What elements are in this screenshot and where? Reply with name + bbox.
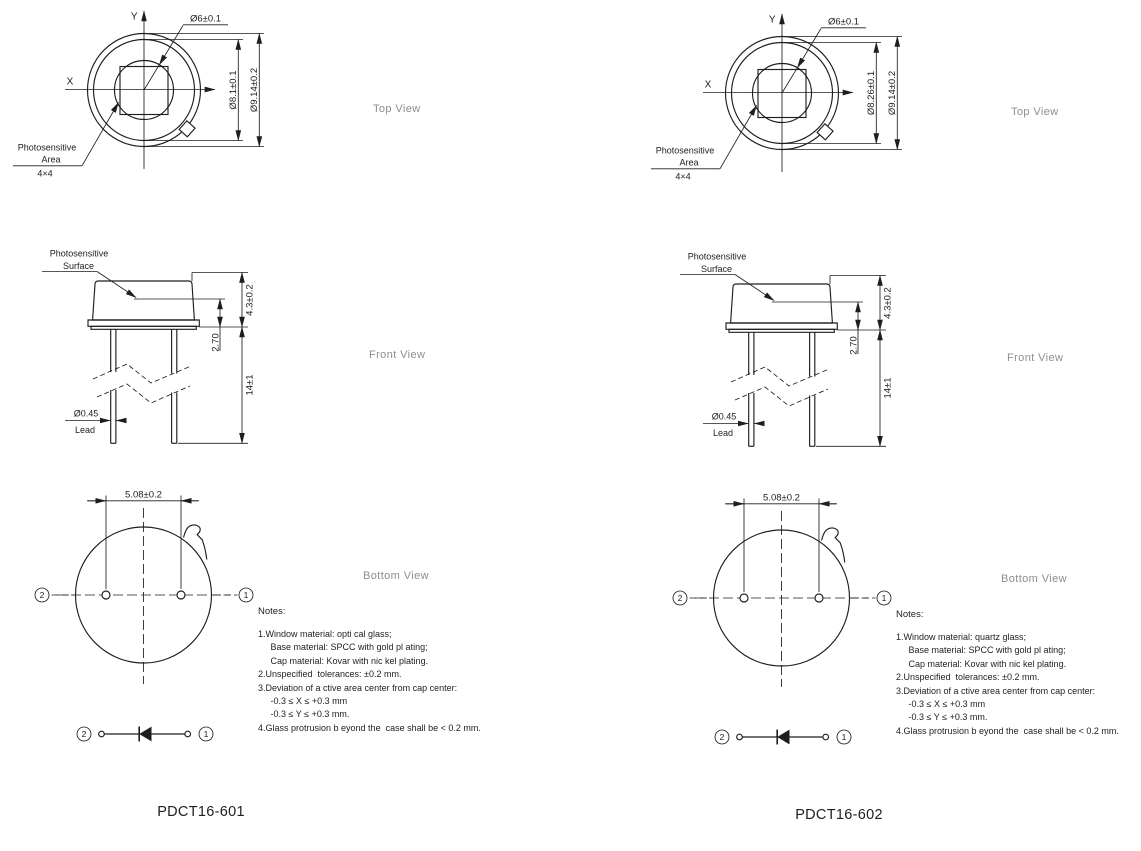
dim-outer-diameter: Ø9.14±0.2 (783, 37, 902, 150)
terminal-2 (99, 731, 105, 737)
part-number: PDCT16-601 (128, 804, 274, 820)
area-label-line2: Area (41, 155, 60, 165)
axis-y-label: Y (131, 12, 138, 23)
dim-outer-diameter: Ø9.14±0.2 (145, 34, 264, 147)
photosensitive-surface-callout: Photosensitive Surface (680, 252, 774, 301)
surface-height-value: 2.70 (211, 333, 222, 352)
note-line: 4.Glass protrusion b eyond the case shal… (896, 725, 1119, 738)
lead-label: Lead (75, 425, 95, 435)
area-label-line2: Area (679, 158, 698, 168)
cap-height-value: 4.3±0.2 (245, 284, 256, 316)
flange-step (729, 329, 834, 332)
cap-body-outline (93, 281, 195, 320)
note-line: -0.3 ≤ Y ≤ +0.3 mm. (896, 711, 1119, 724)
datasheet-page: { "colors": { "line_color": "#1e1e1e", "… (0, 0, 1141, 848)
diode-schematic: 2 1 (77, 727, 213, 742)
terminal-1 (823, 734, 829, 740)
pin-2-number: 2 (40, 590, 45, 600)
photosensitive-surface-callout: Photosensitive Surface (42, 249, 136, 298)
lead-length-value: 14±1 (245, 374, 256, 395)
leads (111, 329, 177, 443)
axis-x-label: X (67, 77, 74, 88)
lead-label: Lead (713, 428, 733, 438)
flange-outline (726, 323, 837, 329)
lead-length-value: 14±1 (883, 377, 894, 398)
pin-2-hole (740, 594, 748, 602)
cap-diameter-value: Ø8.26±0.1 (866, 71, 877, 115)
area-label-line1: Photosensitive (656, 146, 715, 156)
diode-triangle-icon (777, 730, 789, 745)
surface-label-line2: Surface (63, 261, 94, 271)
cap-diameter-value: Ø8.1±0.1 (228, 70, 239, 109)
notes-block: Notes: 1.Window material: opti cal glass… (258, 606, 481, 735)
dim-lead-diameter: Ø0.45 Lead (703, 412, 764, 439)
note-line: Cap material: Kovar with nic kel plating… (258, 655, 481, 668)
schematic-pin-2-number: 2 (82, 729, 87, 739)
cap-body-outline (731, 284, 833, 323)
area-size-value: 4×4 (37, 169, 52, 179)
dim-surface-height: 2.70 (211, 299, 222, 352)
note-line: 2.Unspecified tolerances: ±0.2 mm. (258, 668, 481, 681)
note-line: Base material: SPCC with gold pl ating; (258, 641, 481, 654)
surface-label-line1: Photosensitive (50, 249, 109, 259)
schematic-pin-1-number: 1 (842, 732, 847, 742)
note-line: 2.Unspecified tolerances: ±0.2 mm. (896, 671, 1119, 684)
terminal-2 (737, 734, 743, 740)
photosensitive-area-callout: Photosensitive Area 4×4 (13, 103, 119, 179)
technical-drawing: Y X Ø6±0.1 Photosensitive Area 4×4 (638, 3, 928, 763)
cap-height-value: 4.3±0.2 (883, 287, 894, 319)
outer-diameter-value: Ø9.14±0.2 (249, 68, 260, 112)
window-diameter-value: Ø6±0.1 (828, 17, 859, 28)
top-view: Y X Ø6±0.1 Photosensitive Area 4×4 (13, 11, 264, 179)
front-view: Photosensitive Surface (42, 249, 256, 444)
component-drawing-panel: Y X Ø6±0.1 Photosensitive Area 4×4 (0, 0, 580, 848)
lead-diameter-value: Ø0.45 (712, 412, 737, 422)
pin-1-number: 1 (882, 593, 887, 603)
axis-y-label: Y (769, 15, 776, 26)
pin-2-callout: 2 (35, 588, 74, 602)
note-line: -0.3 ≤ X ≤ +0.3 mm (896, 698, 1119, 711)
surface-height-value: 2.70 (849, 336, 860, 355)
pin-2-number: 2 (678, 593, 683, 603)
technical-drawing: Y X Ø6±0.1 Photosensitive Area 4×4 (0, 0, 290, 760)
view-label-bottom: Bottom View (363, 570, 429, 582)
view-label-top: Top View (373, 103, 421, 115)
note-line: -0.3 ≤ X ≤ +0.3 mm (258, 695, 481, 708)
schematic-pin-1-number: 1 (204, 729, 209, 739)
pin-1-callout: 1 (851, 591, 891, 605)
schematic-pin-2-number: 2 (720, 732, 725, 742)
dim-cap-height: 4.3±0.2 (192, 273, 256, 328)
dim-surface-height: 2.70 (849, 302, 860, 355)
note-line: Base material: SPCC with gold pl ating; (896, 644, 1119, 657)
pin-pitch-value: 5.08±0.2 (125, 490, 162, 501)
top-view: Y X Ø6±0.1 Photosensitive Area 4×4 (651, 14, 902, 182)
surface-label-line1: Photosensitive (688, 252, 747, 262)
pin-1-hole (815, 594, 823, 602)
pin-pitch-value: 5.08±0.2 (763, 493, 800, 504)
window-diameter-value: Ø6±0.1 (190, 14, 221, 25)
lead-diameter-value: Ø0.45 (74, 409, 99, 419)
notes-block: Notes: 1.Window material: quartz glass; … (896, 609, 1119, 738)
photosensitive-area-callout: Photosensitive Area 4×4 (651, 106, 757, 182)
terminal-1 (185, 731, 191, 737)
bottom-view: 5.08±0.2 2 1 (673, 493, 891, 688)
pin-1-callout: 1 (213, 588, 253, 602)
area-label-line1: Photosensitive (18, 143, 77, 153)
pin-2-hole (102, 591, 110, 599)
diode-schematic: 2 1 (715, 730, 851, 745)
pin-2-callout: 2 (673, 591, 712, 605)
axis-x-label: X (705, 80, 712, 91)
bottom-view: 5.08±0.2 2 1 (35, 490, 253, 685)
view-label-bottom: Bottom View (1001, 573, 1067, 585)
note-line: Cap material: Kovar with nic kel plating… (896, 658, 1119, 671)
pin-1-number: 1 (244, 590, 249, 600)
notes-title: Notes: (258, 606, 481, 617)
notes-title: Notes: (896, 609, 1119, 620)
note-line: 3.Deviation of a ctive area center from … (896, 685, 1119, 698)
area-size-value: 4×4 (675, 172, 690, 182)
note-line: 1.Window material: opti cal glass; (258, 628, 481, 641)
view-label-top: Top View (1011, 106, 1059, 118)
view-label-front: Front View (369, 349, 425, 361)
flange-outline (88, 320, 199, 326)
pin-1-hole (177, 591, 185, 599)
part-number: PDCT16-602 (766, 807, 912, 823)
leads (749, 332, 815, 446)
view-label-front: Front View (1007, 352, 1063, 364)
note-line: 4.Glass protrusion b eyond the case shal… (258, 722, 481, 735)
front-view: Photosensitive Surface (680, 252, 894, 447)
flange-step (91, 326, 196, 329)
dim-lead-diameter: Ø0.45 Lead (65, 409, 126, 436)
diode-triangle-icon (139, 727, 151, 742)
outer-diameter-value: Ø9.14±0.2 (887, 71, 898, 115)
component-drawing-panel: Y X Ø6±0.1 Photosensitive Area 4×4 (638, 3, 1141, 851)
surface-label-line2: Surface (701, 264, 732, 274)
dim-cap-height: 4.3±0.2 (830, 276, 894, 331)
note-line: 3.Deviation of a ctive area center from … (258, 682, 481, 695)
note-line: -0.3 ≤ Y ≤ +0.3 mm. (258, 708, 481, 721)
note-line: 1.Window material: quartz glass; (896, 631, 1119, 644)
